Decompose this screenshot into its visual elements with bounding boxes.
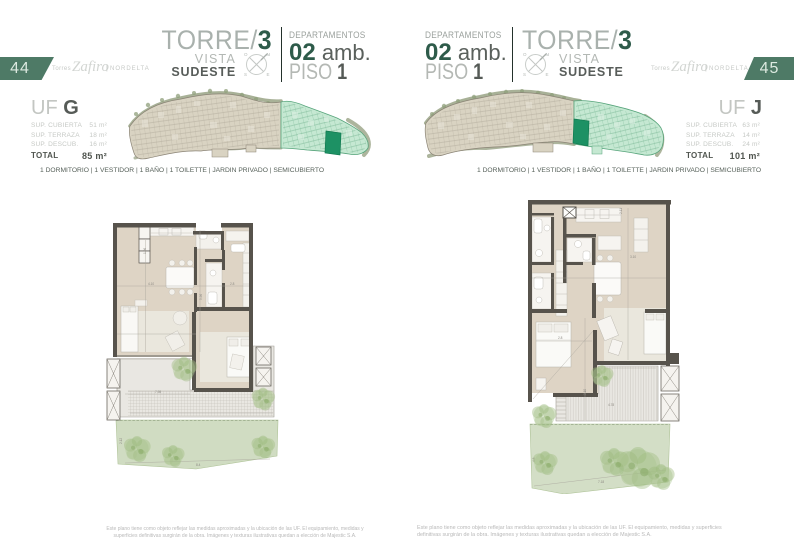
svg-text:2.8: 2.8: [230, 282, 235, 286]
svg-text:7.18: 7.18: [598, 480, 604, 484]
svg-text:2.12: 2.12: [119, 438, 123, 444]
svg-text:O: O: [523, 52, 527, 57]
svg-text:N: N: [546, 52, 549, 57]
svg-text:7.98: 7.98: [155, 390, 161, 394]
svg-text:3.10: 3.10: [630, 255, 636, 259]
svg-text:2.8: 2.8: [558, 336, 563, 340]
svg-text:E: E: [267, 72, 270, 77]
svg-text:S: S: [523, 72, 526, 77]
svg-text:N: N: [267, 52, 270, 57]
svg-text:4.10: 4.10: [148, 282, 154, 286]
svg-text:3.10: 3.10: [583, 389, 587, 395]
svg-text:S: S: [244, 72, 247, 77]
svg-text:2.11: 2.11: [619, 208, 623, 214]
svg-text:O: O: [244, 52, 248, 57]
svg-text:E: E: [546, 72, 549, 77]
svg-text:4.78: 4.78: [608, 403, 614, 407]
svg-text:8.4: 8.4: [196, 463, 201, 467]
svg-text:5.96: 5.96: [199, 294, 203, 300]
svg-text:1.96: 1.96: [143, 248, 147, 254]
